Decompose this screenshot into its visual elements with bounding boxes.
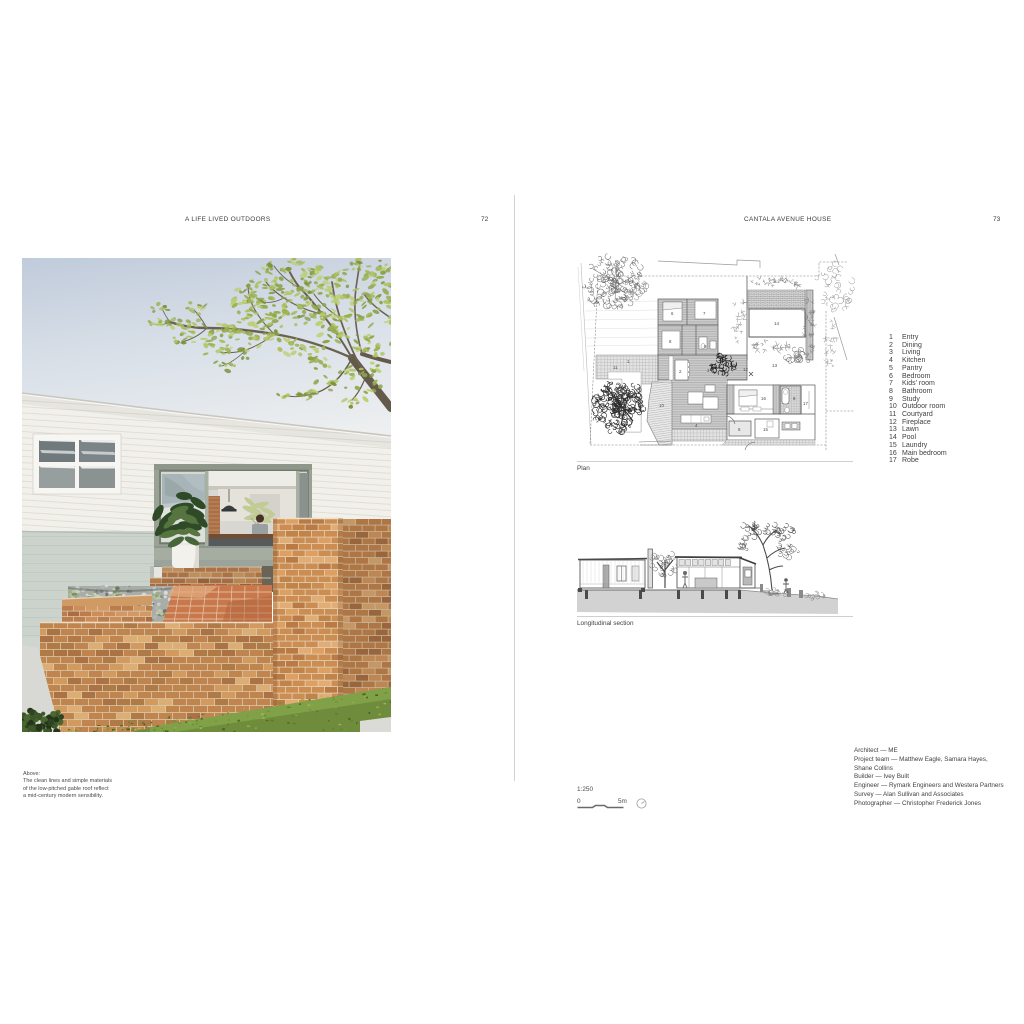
svg-text:0: 0	[577, 798, 581, 805]
svg-text:14: 14	[774, 321, 780, 326]
svg-text:13: 13	[772, 363, 778, 368]
svg-text:11: 11	[613, 365, 618, 370]
svg-text:5m: 5m	[618, 798, 627, 805]
svg-text:12: 12	[743, 367, 748, 372]
svg-text:17: 17	[803, 401, 808, 406]
svg-text:16: 16	[761, 396, 766, 401]
svg-text:10: 10	[659, 403, 664, 408]
svg-text:15: 15	[763, 427, 768, 432]
